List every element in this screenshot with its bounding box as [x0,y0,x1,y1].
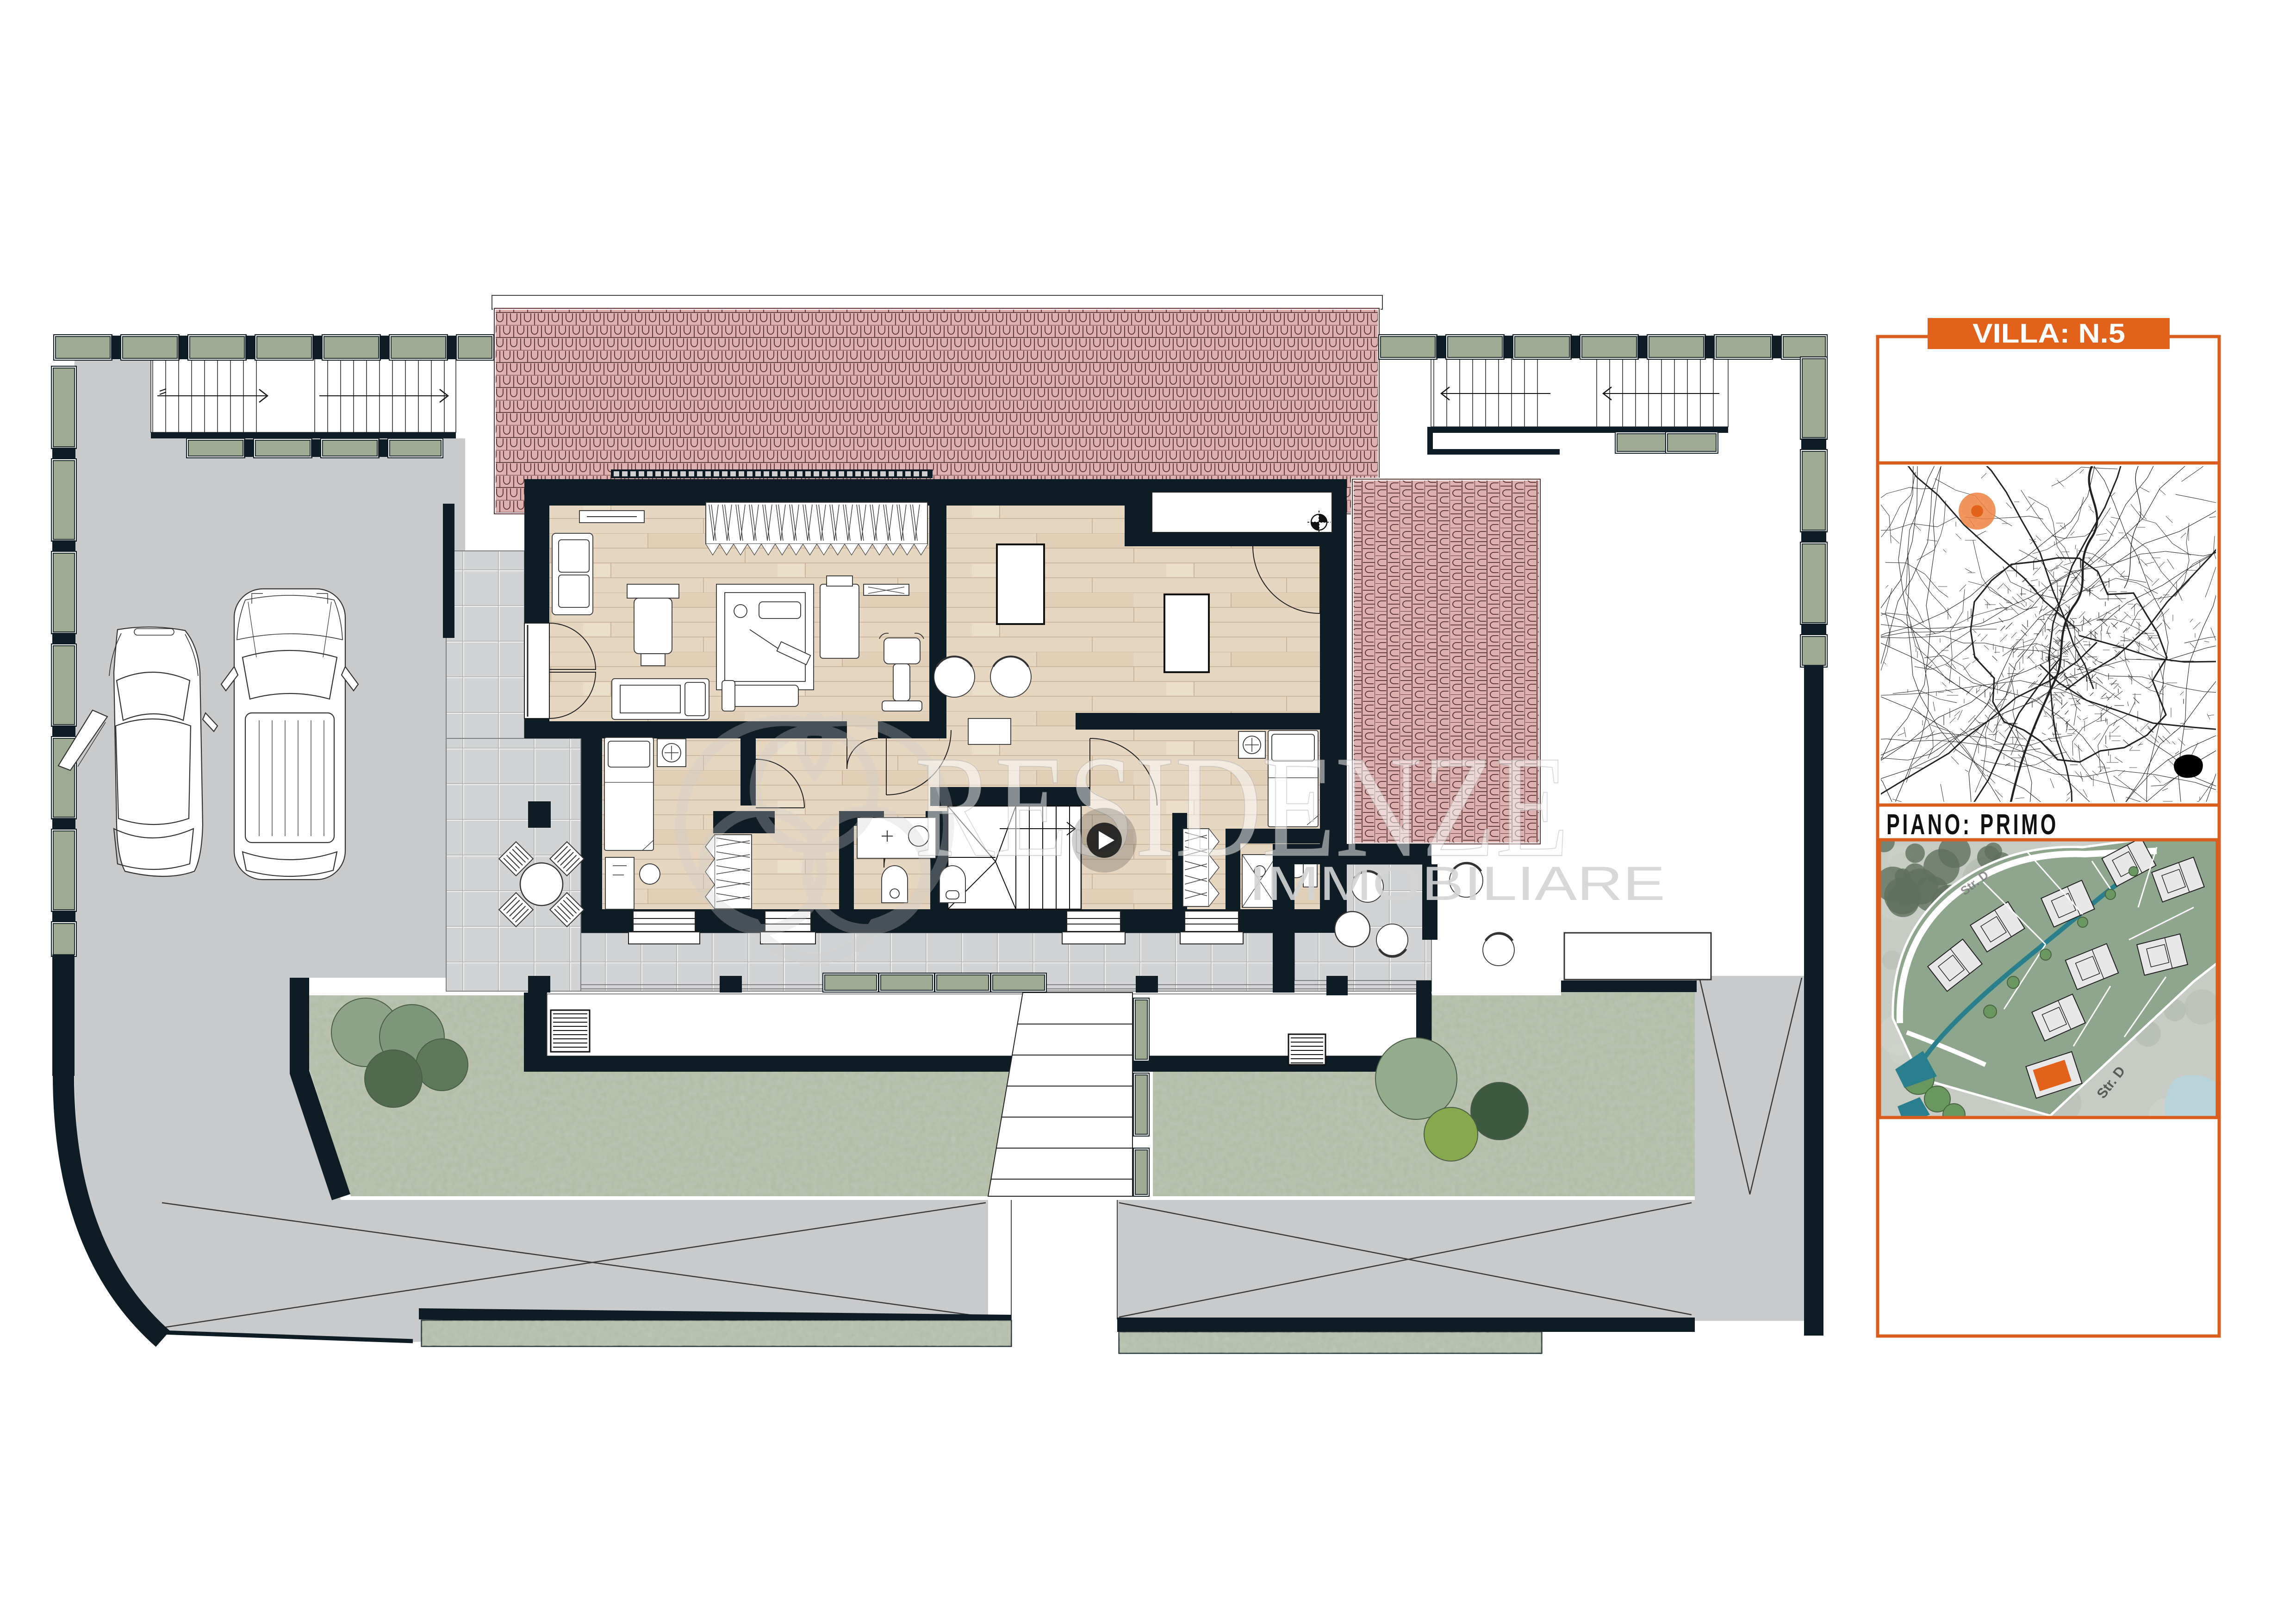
svg-text:PIANO: PRIMO: PIANO: PRIMO [1886,809,2059,841]
svg-text:IMMOBILIARE: IMMOBILIARE [1249,857,1665,911]
svg-text:VILLA: N.5: VILLA: N.5 [1972,319,2125,349]
